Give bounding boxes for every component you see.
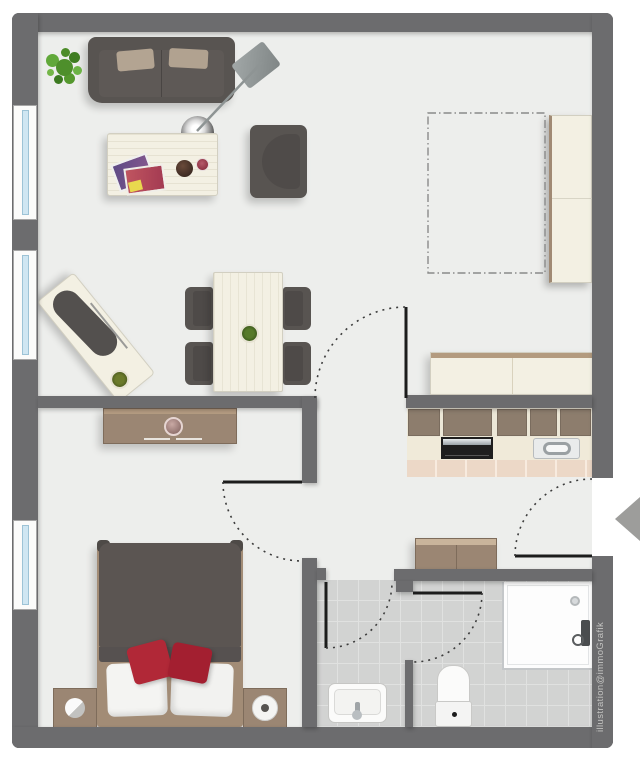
kitchen-wall-cabinets <box>407 408 592 437</box>
bedroom-sideboard <box>103 408 237 444</box>
stove-handle <box>443 439 491 445</box>
sink-basin <box>543 442 571 455</box>
toilet-flush-dot <box>452 712 457 717</box>
dining-chair-top-right <box>283 287 311 330</box>
desk-plant-icon <box>106 366 133 393</box>
wall-cabinet <box>443 409 492 436</box>
shower <box>502 582 592 670</box>
watermark-text: illustration@immoGrafik <box>595 582 609 732</box>
window-living-2 <box>13 250 37 360</box>
chair-seat <box>285 346 303 381</box>
wall-cabinet <box>497 409 527 436</box>
wardrobe-divider <box>552 198 592 199</box>
kitchen-sink <box>533 438 580 459</box>
window-living-1 <box>13 105 37 220</box>
dining-table <box>213 272 283 392</box>
wall-bath-door-stub <box>396 581 413 592</box>
bed-duvet <box>99 543 241 647</box>
wall-right-upper <box>592 13 613 478</box>
double-bed <box>97 543 243 727</box>
stove-line <box>445 455 489 456</box>
desk <box>37 272 155 403</box>
dashed-bed-outline <box>428 113 545 273</box>
drawer-handle <box>144 438 170 440</box>
wall-cabinet <box>560 409 591 436</box>
office-chair <box>47 285 123 362</box>
stove <box>441 437 493 459</box>
wall-bedroom-hall-lower <box>302 558 317 727</box>
wardrobe <box>549 115 592 283</box>
chair-seat <box>193 291 211 326</box>
wash-basin <box>328 683 387 723</box>
table-plant-icon <box>240 324 259 343</box>
sofa-seat-divider <box>161 50 162 97</box>
dining-chair-bottom-left <box>185 342 213 385</box>
window-glass <box>22 110 29 215</box>
hall-cabinet <box>415 538 497 570</box>
hall-cabinet-divider <box>456 545 457 569</box>
faucet-handle <box>352 710 362 720</box>
wall-top <box>12 13 613 32</box>
wall-bedroom-hall-upper <box>302 396 317 483</box>
wall-bottom <box>12 727 613 748</box>
wall-bath-partition <box>405 660 413 727</box>
shower-hose <box>572 634 584 646</box>
floor-lamp-shade <box>231 41 281 89</box>
sideboard-vase <box>164 417 183 436</box>
sofa-pillow-left <box>116 48 155 71</box>
nightstand-lamp-knob <box>261 704 269 712</box>
sideboard-top-edge <box>104 409 236 414</box>
window-glass <box>22 525 29 605</box>
entrance-arrow-icon <box>615 497 640 541</box>
potted-plant-icon <box>56 59 73 76</box>
nightstand-left <box>53 688 97 728</box>
kitchen-floor-tiles <box>407 460 592 477</box>
bowl <box>176 160 193 177</box>
chair-seat <box>193 346 211 381</box>
shower-drain <box>570 596 580 606</box>
wine-glass <box>196 158 209 171</box>
floor-plan-canvas: illustration@immoGrafik <box>0 0 640 762</box>
armchair <box>250 125 307 198</box>
armchair-seat <box>262 134 300 189</box>
wall-living-bedroom <box>38 396 317 408</box>
drawer-handle <box>176 438 202 440</box>
window-bedroom <box>13 520 37 610</box>
sofa-pillow-right <box>169 48 209 69</box>
kitchen-counter <box>407 437 592 460</box>
wall-bath-top <box>394 569 592 581</box>
wall-living-kitchen <box>406 395 592 408</box>
dining-chair-top-left <box>185 287 213 330</box>
wall-bath-left-stub <box>317 568 326 580</box>
entrance-opening <box>592 478 613 556</box>
chair-seat <box>285 291 303 326</box>
nightstand-right <box>243 688 287 728</box>
sofa <box>88 37 235 103</box>
floor-plan <box>12 13 613 748</box>
dining-chair-bottom-right <box>283 342 311 385</box>
entrance-door-arc <box>515 479 592 556</box>
toilet-tank <box>435 701 472 727</box>
wall-cabinet <box>530 409 557 436</box>
nightstand-lamp-left <box>65 698 85 718</box>
window-glass <box>22 255 29 355</box>
wall-cabinet <box>408 409 440 436</box>
kitchen-sideboard-living-side <box>430 352 593 395</box>
sideboard-divider <box>512 358 513 394</box>
red-cushion-right <box>167 642 213 685</box>
coffee-table <box>107 133 218 196</box>
kitchen-door-arc <box>315 307 406 398</box>
